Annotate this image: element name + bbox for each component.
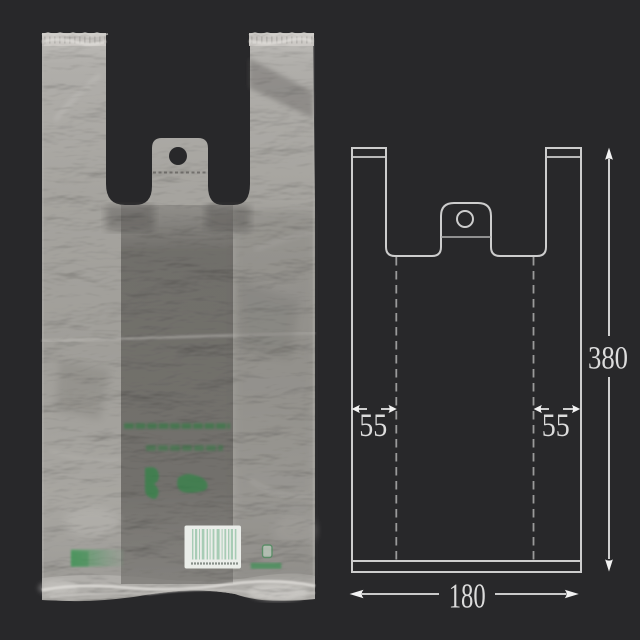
- svg-text:180: 180: [449, 577, 486, 616]
- svg-text:380: 380: [588, 341, 628, 377]
- svg-text:55: 55: [359, 408, 387, 444]
- svg-text:55: 55: [542, 408, 570, 444]
